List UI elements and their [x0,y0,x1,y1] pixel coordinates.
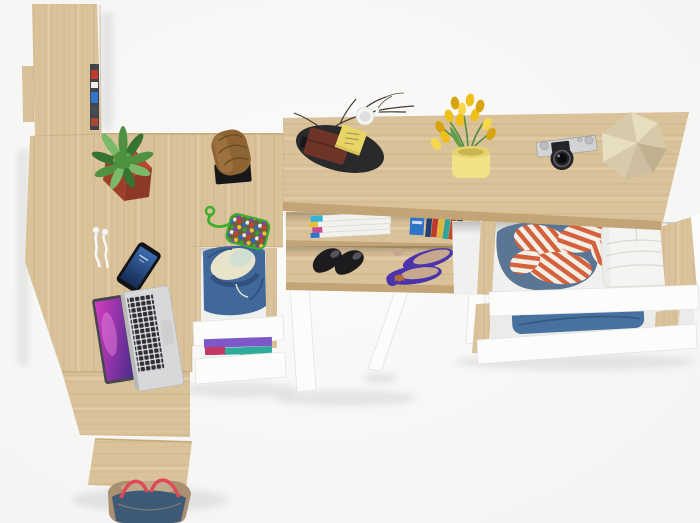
denim-jacket [203,243,266,316]
wall-column-hutch [22,4,101,137]
furniture-product-photo [0,0,700,523]
camera-dial [577,137,582,142]
under-desk-drawer-unit [191,243,286,384]
handbag [108,480,191,523]
hutch-notch [22,66,34,122]
hutch-shelf-slit [90,64,99,130]
vase [452,146,490,178]
book-spine [412,221,422,225]
laptop [91,285,184,396]
